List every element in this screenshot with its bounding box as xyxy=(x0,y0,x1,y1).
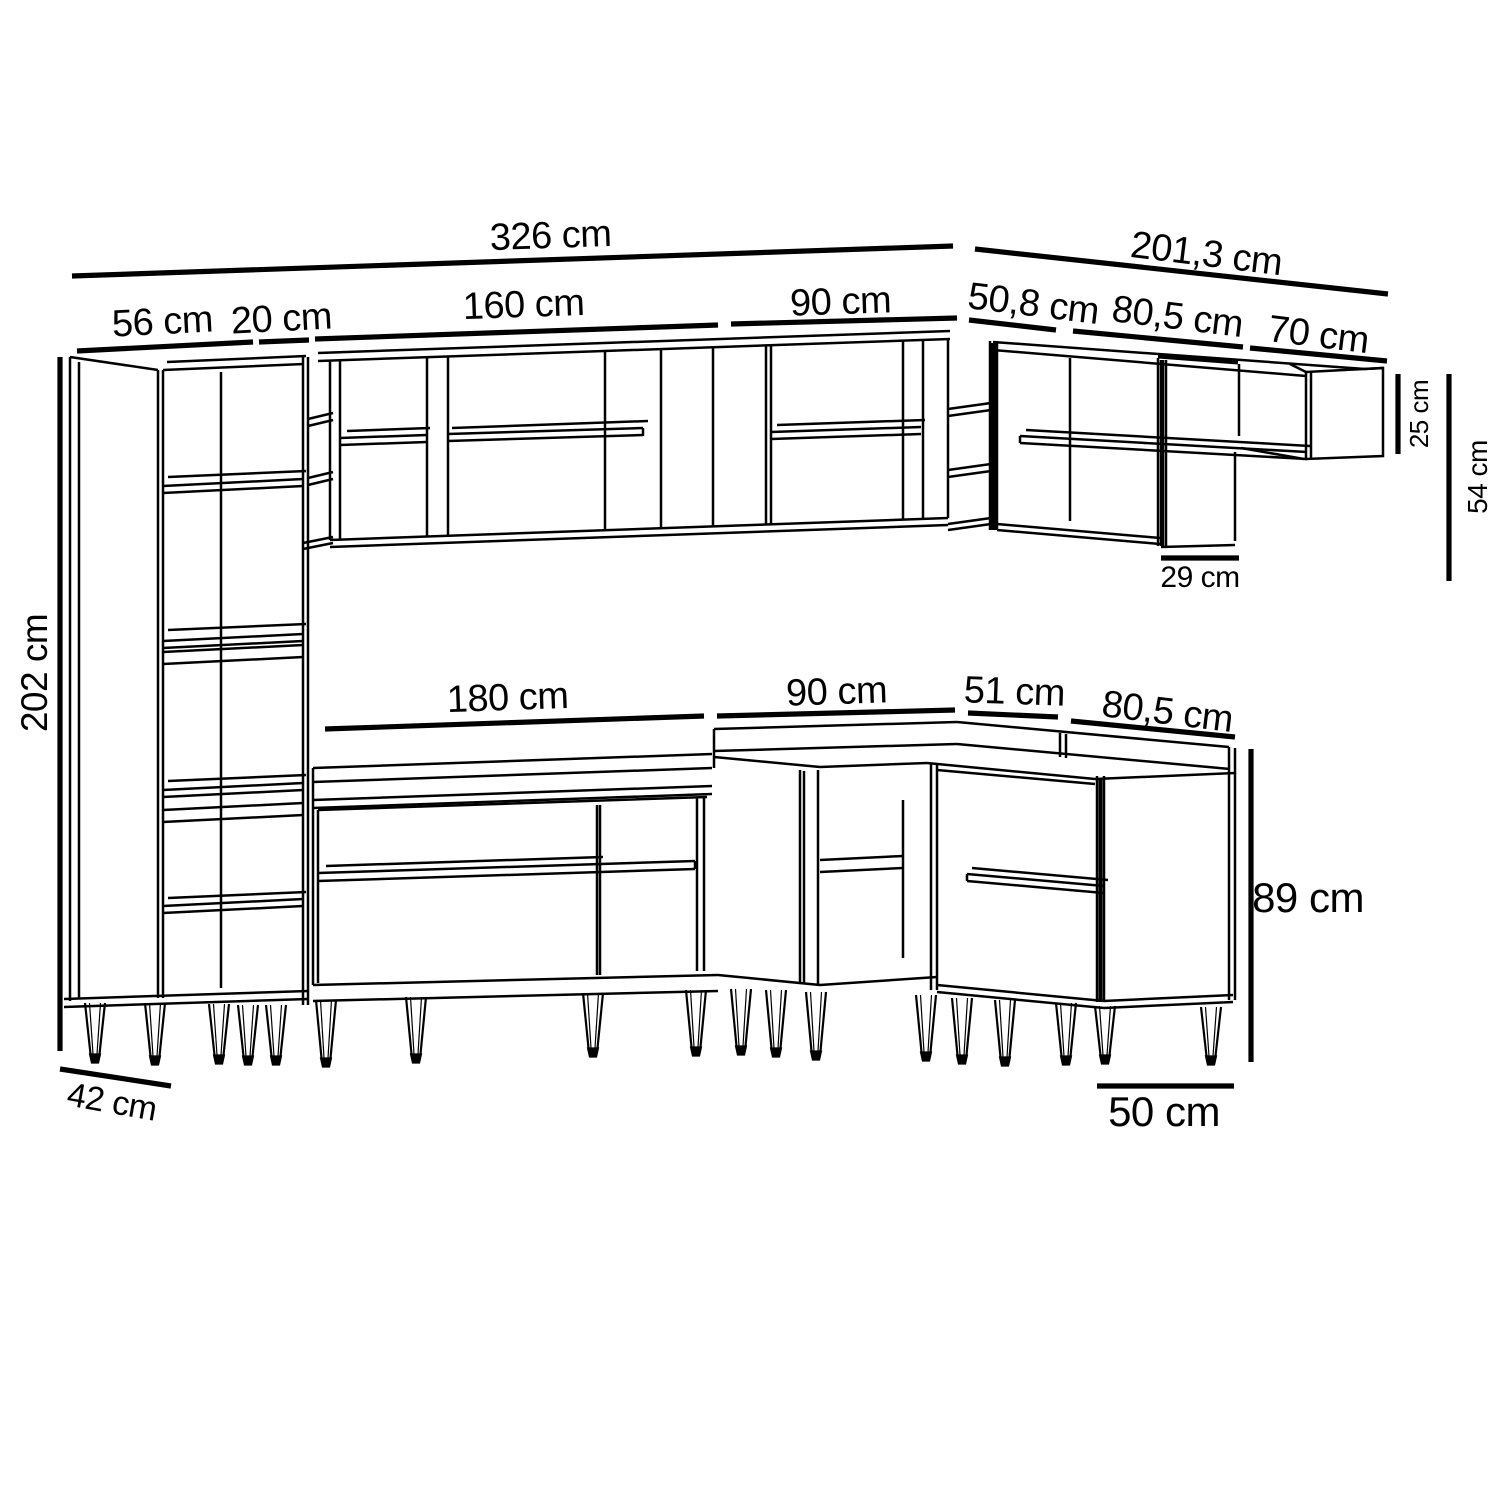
svg-text:80,5 cm: 80,5 cm xyxy=(1100,683,1236,741)
svg-text:90 cm: 90 cm xyxy=(785,669,887,714)
svg-text:202 cm: 202 cm xyxy=(14,614,55,732)
svg-text:326 cm: 326 cm xyxy=(489,213,612,259)
svg-text:160 cm: 160 cm xyxy=(462,282,585,328)
svg-text:25 cm: 25 cm xyxy=(1404,380,1434,448)
svg-text:201,3 cm: 201,3 cm xyxy=(1128,224,1284,284)
svg-text:90 cm: 90 cm xyxy=(789,279,891,324)
svg-text:70 cm: 70 cm xyxy=(1266,308,1371,362)
svg-text:180 cm: 180 cm xyxy=(446,675,569,721)
svg-text:89 cm: 89 cm xyxy=(1252,874,1364,921)
svg-text:56 cm: 56 cm xyxy=(111,298,214,345)
svg-text:29 cm: 29 cm xyxy=(1160,561,1239,594)
svg-text:50 cm: 50 cm xyxy=(1108,1088,1220,1135)
svg-text:51 cm: 51 cm xyxy=(963,669,1065,714)
svg-text:20 cm: 20 cm xyxy=(230,295,333,342)
svg-text:54 cm: 54 cm xyxy=(1462,440,1493,514)
